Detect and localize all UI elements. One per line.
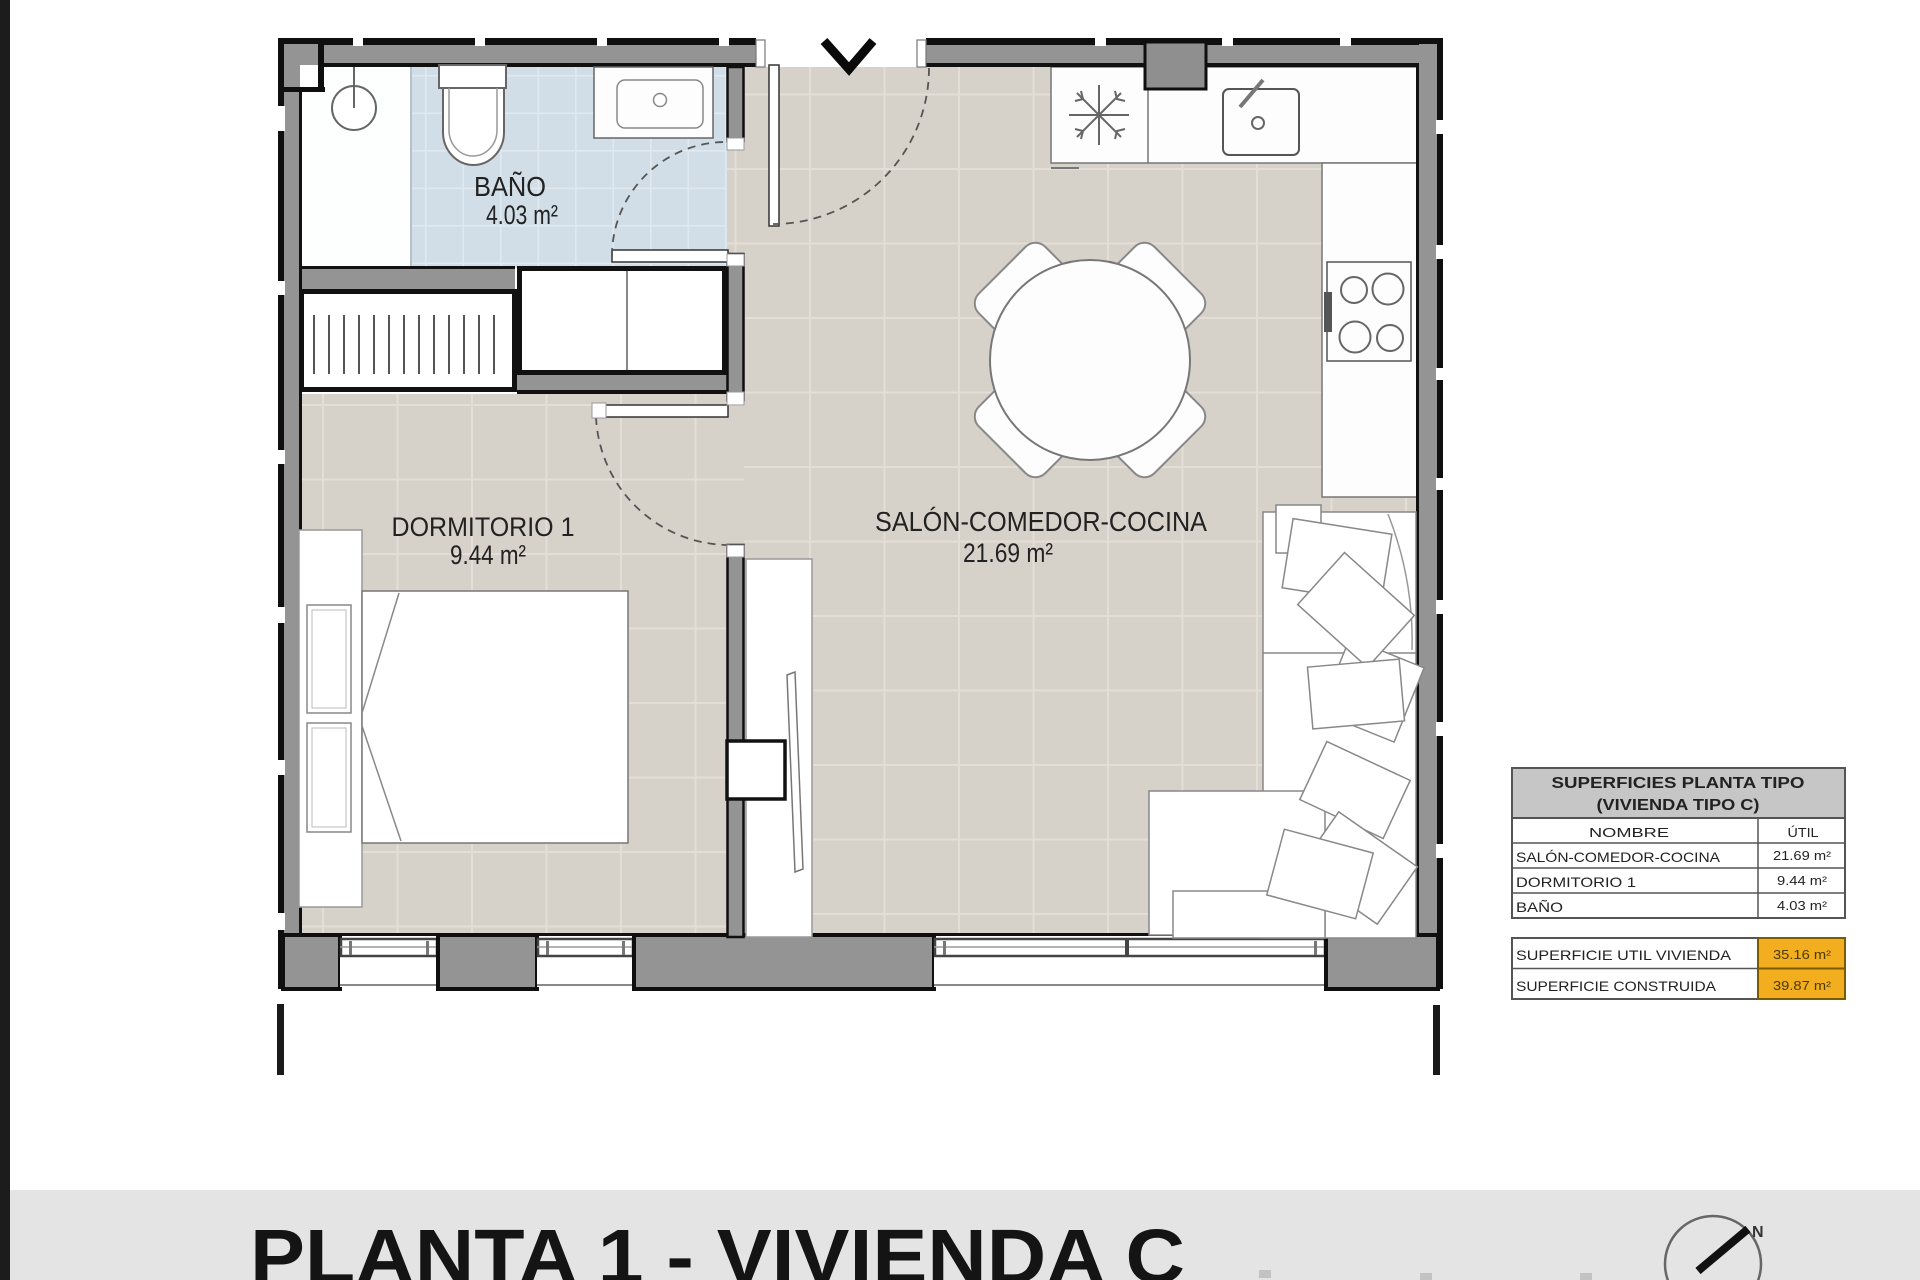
svg-text:SALÓN-COMEDOR-COCINA: SALÓN-COMEDOR-COCINA xyxy=(875,506,1207,537)
svg-text:(VIVIENDA TIPO C): (VIVIENDA TIPO C) xyxy=(1597,797,1760,814)
svg-text:DORMITORIO 1: DORMITORIO 1 xyxy=(1516,874,1636,890)
svg-text:21.69 m²: 21.69 m² xyxy=(963,538,1053,568)
svg-text:NOMBRE: NOMBRE xyxy=(1589,825,1669,840)
svg-text:35.16 m²: 35.16 m² xyxy=(1773,947,1832,962)
svg-text:SUPERFICIE CONSTRUIDA: SUPERFICIE CONSTRUIDA xyxy=(1516,978,1717,994)
svg-text:BAÑO: BAÑO xyxy=(1516,899,1563,915)
svg-text:SALÓN-COMEDOR-COCINA: SALÓN-COMEDOR-COCINA xyxy=(1516,849,1721,865)
svg-text:SUPERFICIES PLANTA TIPO: SUPERFICIES PLANTA TIPO xyxy=(1552,775,1805,792)
svg-text:PLANTA 1 - VIVIENDA C: PLANTA 1 - VIVIENDA C xyxy=(250,1214,1185,1280)
svg-text:9.44 m²: 9.44 m² xyxy=(450,540,526,570)
svg-text:9.44 m²: 9.44 m² xyxy=(1777,873,1828,888)
svg-text:DORMITORIO 1: DORMITORIO 1 xyxy=(392,512,575,542)
svg-text:4.03 m²: 4.03 m² xyxy=(486,200,558,230)
svg-text:4.03 m²: 4.03 m² xyxy=(1777,898,1828,913)
svg-text:SUPERFICIE UTIL VIVIENDA: SUPERFICIE UTIL VIVIENDA xyxy=(1516,947,1732,963)
svg-text:21.69 m²: 21.69 m² xyxy=(1773,848,1832,863)
svg-text:ÚTIL: ÚTIL xyxy=(1788,825,1819,840)
svg-text:N: N xyxy=(1752,1224,1764,1241)
svg-text:39.87 m²: 39.87 m² xyxy=(1773,978,1832,993)
svg-text:BAÑO: BAÑO xyxy=(474,171,546,202)
